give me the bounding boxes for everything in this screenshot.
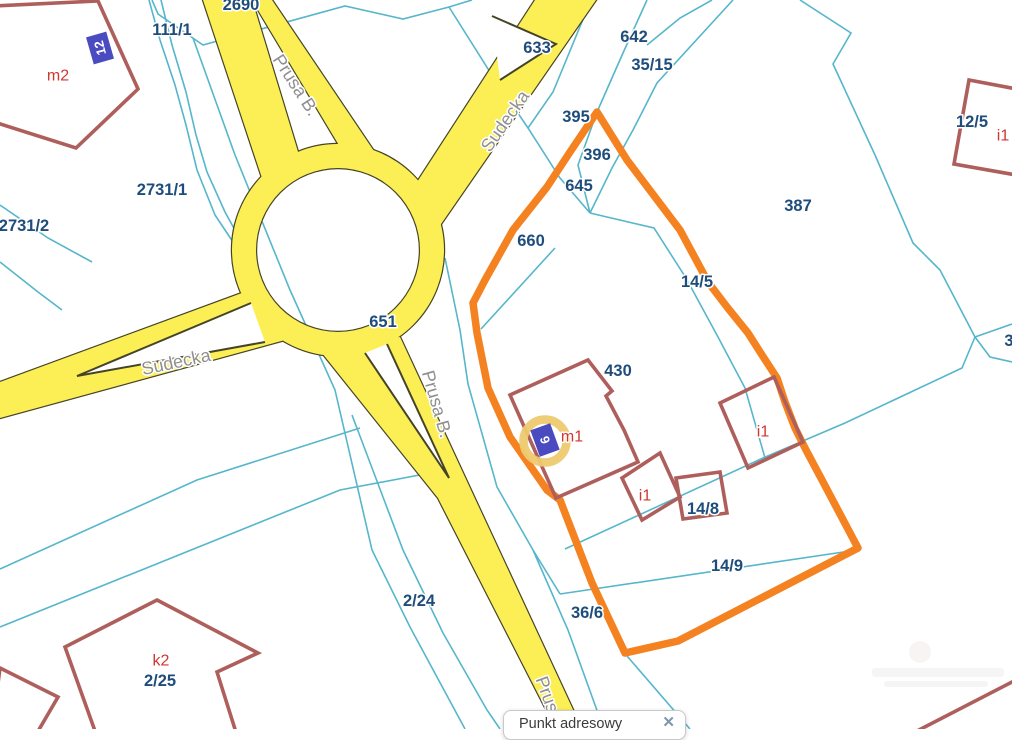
- parcel_label: 2/24: [403, 592, 436, 610]
- parcel_label: 645: [565, 177, 593, 195]
- parcel_label: 651: [369, 313, 397, 331]
- parcel_label: 642: [620, 28, 648, 46]
- map-canvas[interactable]: 126 Prusa B.SudeckaSudeckaPrusa B.Prusa2…: [0, 0, 1012, 729]
- building_label: k2: [153, 653, 170, 670]
- parcel_label: 395: [562, 108, 590, 126]
- parcel_label: 12/5: [956, 113, 988, 131]
- parcel-boundary-line: [800, 0, 975, 337]
- parcel_label: 2690: [223, 0, 260, 14]
- parcel_label: 660: [517, 232, 545, 250]
- watermark-emblem: [909, 641, 931, 663]
- parcel_label: 3: [1004, 332, 1012, 350]
- building_label: m2: [47, 68, 69, 85]
- parcel_label: 2731/1: [137, 181, 187, 199]
- parcel-boundary-line: [0, 473, 430, 627]
- parcel-boundary-line: [0, 428, 360, 569]
- parcel_label: 633: [523, 39, 551, 57]
- parcel_label: 387: [784, 197, 812, 215]
- watermark-text-bar: [884, 681, 988, 687]
- watermark-text-bar: [872, 668, 1004, 677]
- parcel-boundary-line: [647, 0, 712, 45]
- building_label: i1: [997, 128, 1010, 145]
- parcel_label: 14/9: [711, 557, 743, 575]
- selected-parcel-outline: [473, 112, 858, 653]
- parcel_label: 2731/2: [0, 217, 49, 235]
- parcel_label: 14/8: [687, 500, 719, 518]
- building-outline: [917, 681, 1012, 729]
- parcel-boundary-line: [590, 0, 733, 213]
- parcel-boundary-line: [533, 550, 560, 594]
- parcel_label: 14/5: [681, 273, 713, 291]
- parcel_label: 35/15: [631, 56, 672, 74]
- parcel_label: 430: [604, 362, 632, 380]
- parcel_label: 396: [583, 146, 611, 164]
- watermark: [872, 641, 1004, 687]
- road-segment: [318, 337, 582, 729]
- parcel_label: 111/1: [152, 21, 191, 39]
- parcel-boundary-line: [0, 262, 62, 310]
- close-icon[interactable]: ✕: [662, 714, 675, 732]
- address-popup: Punkt adresowy ✕: [503, 710, 686, 740]
- parcel-boundary-line: [590, 213, 765, 458]
- building_label: m1: [561, 429, 583, 446]
- building-outline: [0, 668, 58, 729]
- parcel_label: 2/25: [144, 672, 176, 690]
- selected-parcel-highlight[interactable]: [473, 112, 858, 653]
- cadastral-map[interactable]: 126 Prusa B.SudeckaSudeckaPrusa B.Prusa2…: [0, 0, 1012, 729]
- parcel-boundary-line: [152, 0, 472, 45]
- building_label: i1: [639, 488, 652, 505]
- building_label: i1: [757, 424, 770, 441]
- parcel_label: 36/6: [571, 604, 603, 622]
- address-point-marker[interactable]: 12: [86, 32, 114, 65]
